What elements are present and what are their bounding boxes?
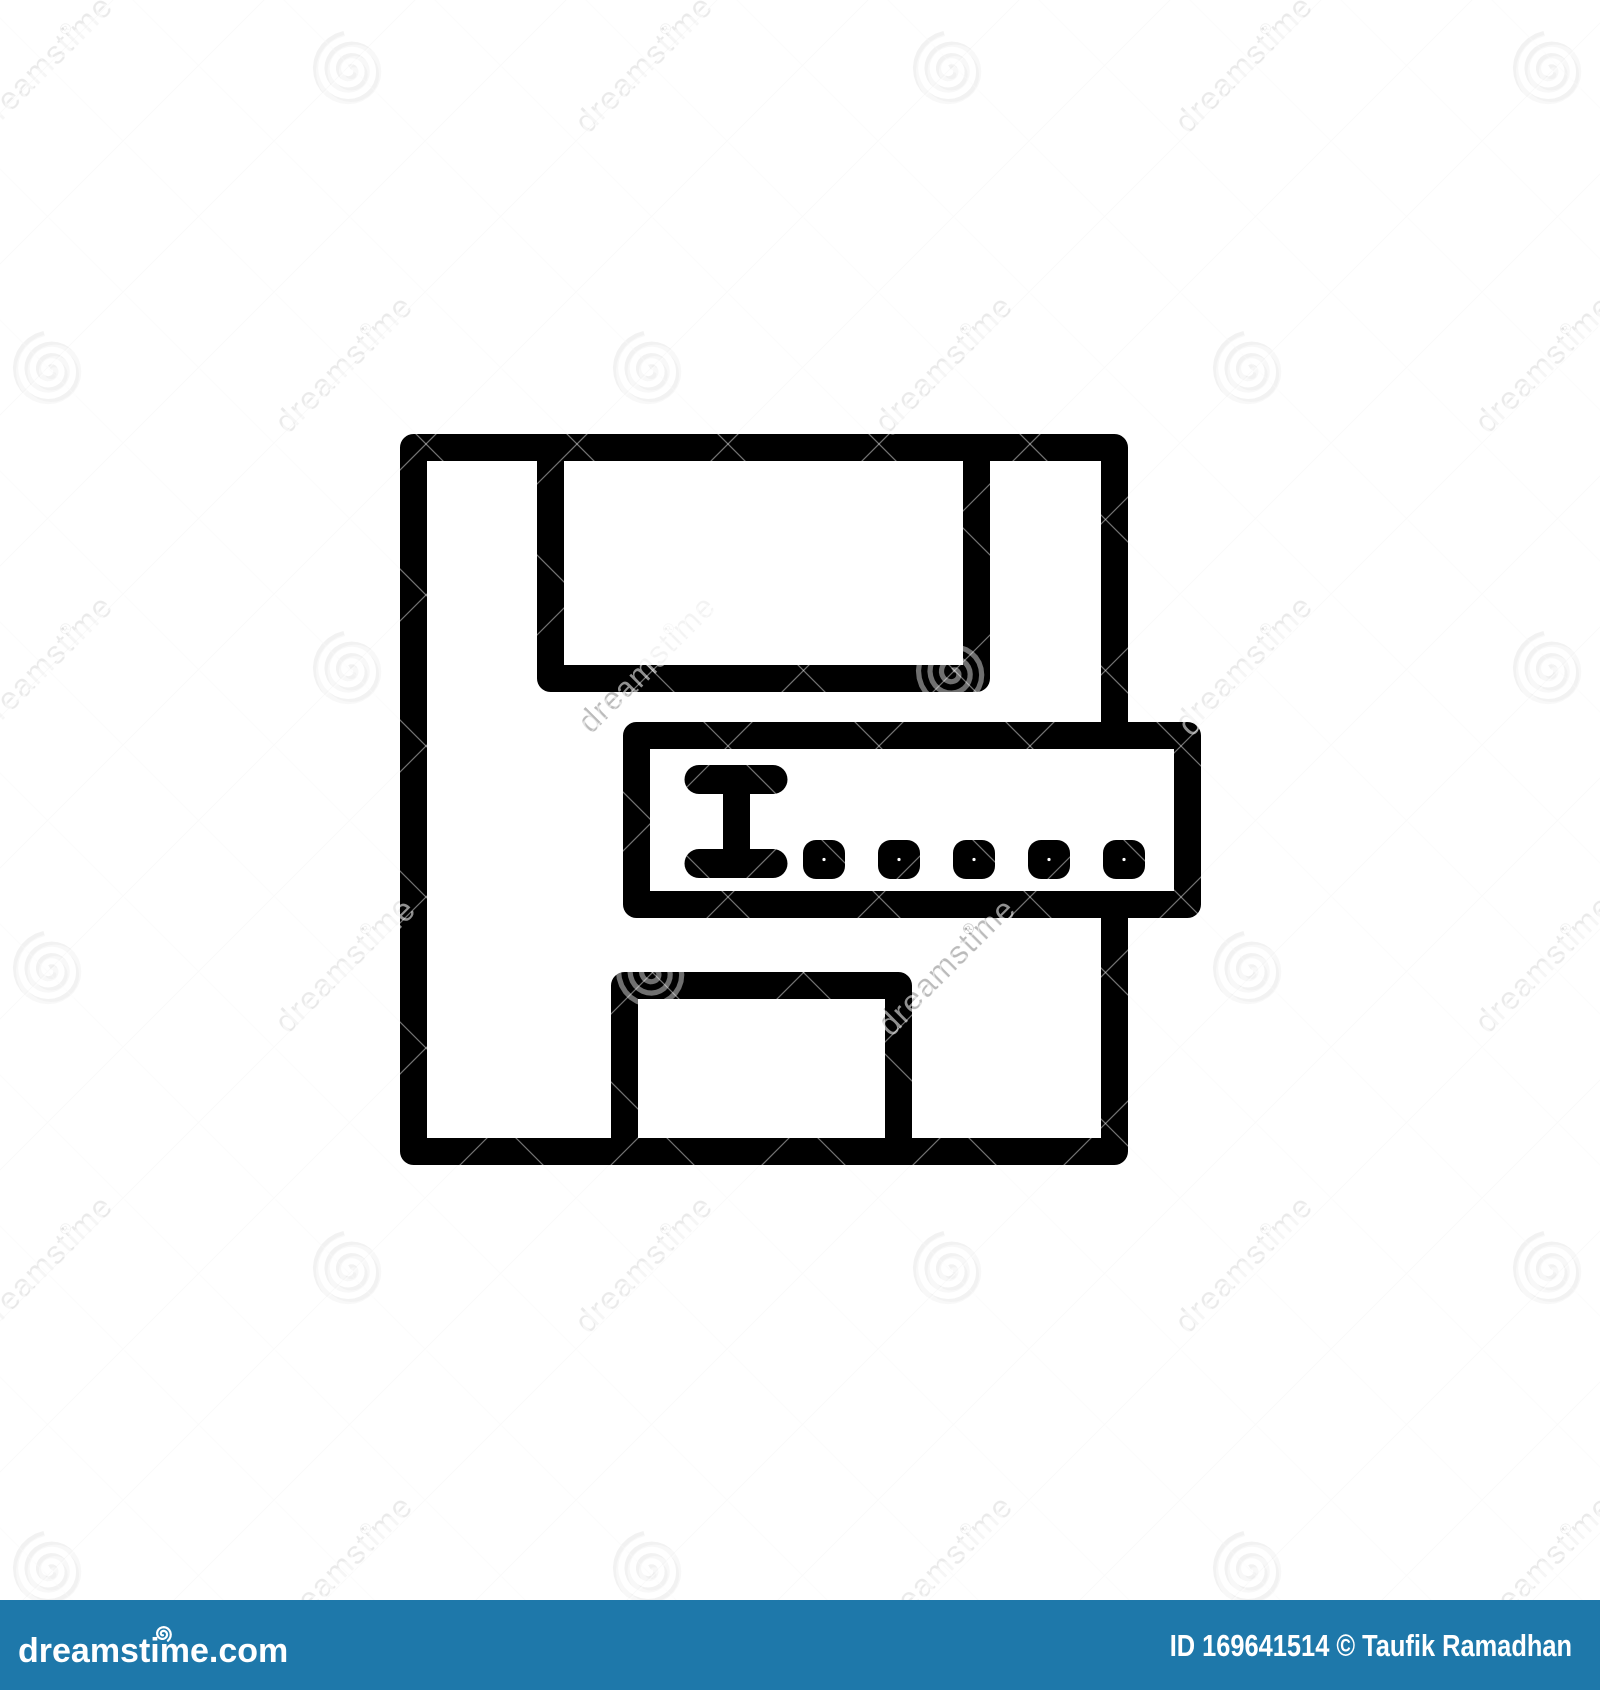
svg-text:dreamstime.com: dreamstime.com (18, 1632, 288, 1670)
svg-text:ID 169641514 © Taufik Ramadhan: ID 169641514 © Taufik Ramadhan (1170, 1629, 1572, 1664)
